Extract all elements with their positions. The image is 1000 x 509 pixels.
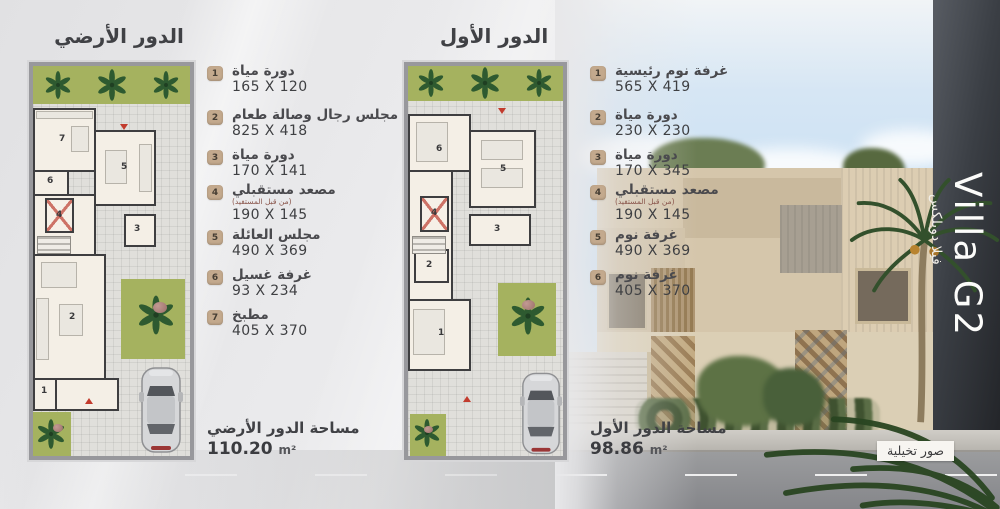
room-name: دورة مياة bbox=[232, 147, 308, 163]
legend-number-badge: 3 bbox=[590, 150, 606, 165]
legend-text: دورة مياة165 X 120 bbox=[232, 63, 308, 97]
room-dimensions: 825 X 418 bbox=[232, 123, 398, 140]
area-unit: m² bbox=[279, 443, 297, 457]
legend-item-first-2: 2دورة مياة230 X 230 bbox=[590, 107, 691, 141]
room-number-label: 6 bbox=[436, 144, 442, 154]
legend-number-badge: 6 bbox=[590, 270, 606, 285]
legend-number-badge: 5 bbox=[590, 230, 606, 245]
room-name: غرفة نوم bbox=[615, 227, 691, 243]
area-number: 98.86 bbox=[590, 439, 644, 459]
plant-icon bbox=[95, 68, 129, 102]
legend-number-badge: 5 bbox=[207, 230, 223, 245]
sofa bbox=[36, 298, 49, 360]
legend-item-first-6: 6غرفة نوم405 X 370 bbox=[590, 267, 691, 301]
kitchen-table bbox=[71, 126, 89, 152]
dining-table bbox=[41, 262, 77, 288]
staircase bbox=[37, 236, 71, 254]
area-unit: m² bbox=[650, 443, 668, 457]
legend-text: دورة مياة170 X 345 bbox=[615, 147, 691, 181]
room-name: مجلس رجال وصالة طعام bbox=[232, 107, 398, 123]
bed bbox=[481, 140, 523, 160]
legend-item-ground-6: 6غرفة غسيل93 X 234 bbox=[207, 267, 312, 301]
brochure-canvas: Villa G2 فيلا دوبلكس صور تخيلية الدور ال… bbox=[0, 0, 1000, 509]
room-dimensions: 405 X 370 bbox=[232, 323, 308, 340]
room-name: مجلس العائلة bbox=[232, 227, 321, 243]
legend-number-badge: 1 bbox=[207, 66, 223, 81]
legend-text: مصعد مستقبلي(من قبل المستفيد)190 X 145 bbox=[615, 182, 719, 224]
room-name: مطبخ bbox=[232, 307, 308, 323]
sofa bbox=[139, 144, 152, 192]
area-label: مساحة الدور الأرضي bbox=[207, 419, 360, 437]
room-number-label: 3 bbox=[494, 224, 500, 234]
room-number-label: 2 bbox=[426, 260, 432, 270]
room-name: غرفة نوم bbox=[615, 267, 691, 283]
room-number-label: 6 bbox=[47, 176, 53, 186]
room-number-label: 4 bbox=[431, 208, 437, 218]
room-dimensions: 405 X 370 bbox=[615, 283, 691, 300]
legend-text: دورة مياة230 X 230 bbox=[615, 107, 691, 141]
entrance-arrow bbox=[85, 398, 93, 404]
first-floor-title: الدور الأول bbox=[404, 24, 584, 48]
plant-icon bbox=[412, 418, 442, 448]
entrance-arrow bbox=[463, 396, 471, 402]
ground-floor-legend: 1دورة مياة165 X 1202مجلس رجال وصالة طعام… bbox=[207, 0, 392, 420]
first-floor-legend: 1غرفة نوم رئيسية565 X 4192دورة مياة230 X… bbox=[590, 0, 775, 420]
bed bbox=[416, 122, 448, 162]
first-floor-area: مساحة الدور الأول 98.86 m² bbox=[590, 419, 727, 459]
kitchen-counter bbox=[36, 111, 93, 119]
ground-floor-plan: 1234567 bbox=[29, 62, 194, 460]
room-number-label: 2 bbox=[69, 312, 75, 322]
entry-hall bbox=[55, 378, 119, 411]
legend-item-ground-1: 1دورة مياة165 X 120 bbox=[207, 63, 308, 97]
legend-item-first-4: 4مصعد مستقبلي(من قبل المستفيد)190 X 145 bbox=[590, 182, 719, 224]
legend-text: دورة مياة170 X 141 bbox=[232, 147, 308, 181]
room-name: دورة مياة bbox=[232, 63, 308, 79]
legend-item-ground-7: 7مطبخ405 X 370 bbox=[207, 307, 308, 341]
area-value: 98.86 m² bbox=[590, 439, 727, 459]
area-value: 110.20 m² bbox=[207, 439, 360, 459]
parked-car bbox=[139, 366, 183, 454]
room-name: غرفة نوم رئيسية bbox=[615, 63, 728, 79]
room-number-label: 5 bbox=[500, 164, 506, 174]
room-name: مصعد مستقبلي bbox=[615, 182, 719, 198]
plant-icon bbox=[524, 68, 554, 98]
area-number: 110.20 bbox=[207, 439, 273, 459]
ground-floor-area: مساحة الدور الأرضي 110.20 m² bbox=[207, 419, 360, 459]
room-dimensions: 170 X 141 bbox=[232, 163, 308, 180]
room-note: (من قبل المستفيد) bbox=[615, 197, 719, 206]
parked-car bbox=[520, 371, 562, 456]
room-name: مصعد مستقبلي bbox=[232, 182, 336, 198]
legend-text: غرفة نوم رئيسية565 X 419 bbox=[615, 63, 728, 97]
legend-item-first-3: 3دورة مياة170 X 345 bbox=[590, 147, 691, 181]
road-dashed-line bbox=[185, 474, 555, 476]
room-dimensions: 230 X 230 bbox=[615, 123, 691, 140]
plant-icon bbox=[416, 68, 446, 98]
staircase bbox=[412, 236, 446, 254]
legend-item-first-5: 5غرفة نوم490 X 369 bbox=[590, 227, 691, 261]
legend-number-badge: 2 bbox=[590, 110, 606, 125]
legend-text: غرفة نوم490 X 369 bbox=[615, 227, 691, 261]
legend-number-badge: 7 bbox=[207, 310, 223, 325]
legend-text: غرفة غسيل93 X 234 bbox=[232, 267, 312, 301]
legend-number-badge: 3 bbox=[207, 150, 223, 165]
entrance-arrow bbox=[498, 108, 506, 114]
room-number-label: 3 bbox=[134, 224, 140, 234]
room-dimensions: 490 X 369 bbox=[232, 243, 321, 260]
legend-text: غرفة نوم405 X 370 bbox=[615, 267, 691, 301]
room-number-label: 1 bbox=[438, 328, 444, 338]
entrance-arrow bbox=[120, 124, 128, 130]
room-note: (من قبل المستفيد) bbox=[232, 197, 336, 206]
room-dimensions: 190 X 145 bbox=[232, 207, 336, 224]
legend-number-badge: 1 bbox=[590, 66, 606, 81]
legend-text: مجلس رجال وصالة طعام825 X 418 bbox=[232, 107, 398, 141]
plant-icon bbox=[43, 70, 73, 100]
legend-number-badge: 4 bbox=[590, 185, 606, 200]
legend-number-badge: 2 bbox=[207, 110, 223, 125]
area-label: مساحة الدور الأول bbox=[590, 419, 727, 437]
legend-item-ground-5: 5مجلس العائلة490 X 369 bbox=[207, 227, 321, 261]
room-dimensions: 165 X 120 bbox=[232, 79, 308, 96]
legend-item-ground-4: 4مصعد مستقبلي(من قبل المستفيد)190 X 145 bbox=[207, 182, 336, 224]
rock bbox=[53, 424, 63, 432]
plant-icon bbox=[35, 418, 67, 450]
villa-name-vertical: Villa G2 bbox=[946, 172, 989, 338]
plant-icon bbox=[151, 70, 181, 100]
disclaimer-badge: صور تخيلية bbox=[877, 441, 954, 461]
room-number-label: 7 bbox=[59, 134, 65, 144]
room-name: غرفة غسيل bbox=[232, 267, 312, 283]
room-dimensions: 190 X 145 bbox=[615, 207, 719, 224]
room-name: دورة مياة bbox=[615, 107, 691, 123]
legend-item-first-1: 1غرفة نوم رئيسية565 X 419 bbox=[590, 63, 728, 97]
villa-name-arabic-vertical: فيلا دوبلكس bbox=[928, 194, 944, 265]
legend-number-badge: 4 bbox=[207, 185, 223, 200]
room-number-label: 5 bbox=[121, 162, 127, 172]
room-dimensions: 170 X 345 bbox=[615, 163, 691, 180]
plant-icon bbox=[468, 66, 502, 100]
legend-text: مجلس العائلة490 X 369 bbox=[232, 227, 321, 261]
room-number-label: 4 bbox=[56, 210, 62, 220]
room-dimensions: 565 X 419 bbox=[615, 79, 728, 96]
first-floor-plan: 123456 bbox=[404, 62, 567, 460]
legend-item-ground-3: 3دورة مياة170 X 141 bbox=[207, 147, 308, 181]
ground-floor-title: الدور الأرضي bbox=[29, 24, 209, 48]
legend-text: مطبخ405 X 370 bbox=[232, 307, 308, 341]
room-dimensions: 490 X 369 bbox=[615, 243, 691, 260]
legend-item-ground-2: 2مجلس رجال وصالة طعام825 X 418 bbox=[207, 107, 398, 141]
room-dimensions: 93 X 234 bbox=[232, 283, 312, 300]
room-number-label: 1 bbox=[41, 386, 47, 396]
legend-number-badge: 6 bbox=[207, 270, 223, 285]
plant-icon bbox=[135, 294, 177, 336]
legend-text: مصعد مستقبلي(من قبل المستفيد)190 X 145 bbox=[232, 182, 336, 224]
room-name: دورة مياة bbox=[615, 147, 691, 163]
